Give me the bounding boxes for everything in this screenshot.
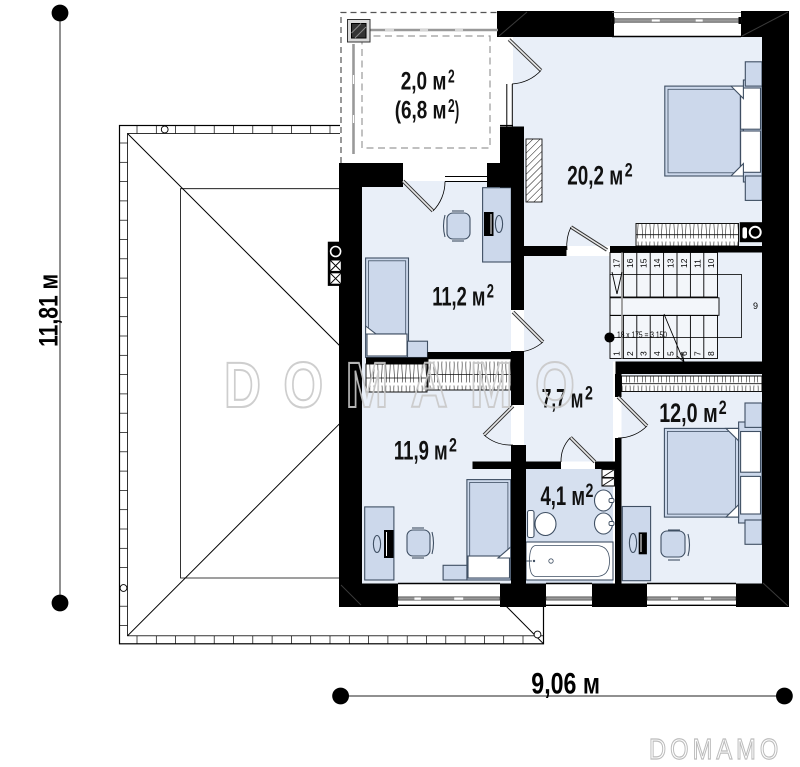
svg-text:20,2 м: 20,2 м: [567, 161, 623, 191]
svg-text:2: 2: [625, 351, 635, 356]
svg-text:17: 17: [612, 258, 622, 268]
svg-text:18 x 175 = 3 150: 18 x 175 = 3 150: [617, 330, 667, 340]
svg-text:5: 5: [666, 351, 676, 356]
svg-text:10: 10: [706, 258, 716, 268]
svg-text:11,81 м: 11,81 м: [33, 274, 63, 347]
svg-text:): ): [455, 97, 460, 125]
svg-text:7: 7: [693, 351, 703, 356]
svg-text:6: 6: [679, 351, 689, 356]
svg-text:8: 8: [706, 351, 716, 356]
svg-text:2: 2: [586, 481, 594, 502]
svg-text:2,0 м: 2,0 м: [401, 68, 447, 96]
svg-text:4,1 м: 4,1 м: [541, 481, 586, 511]
svg-text:DOMAMO: DOMAMO: [224, 351, 597, 422]
svg-text:12,0 м: 12,0 м: [659, 398, 718, 428]
svg-text:14: 14: [652, 258, 662, 268]
svg-text:(6,8 м: (6,8 м: [395, 97, 447, 125]
svg-text:1: 1: [612, 351, 622, 356]
svg-text:DOMAMO: DOMAMO: [649, 733, 782, 766]
svg-text:11: 11: [693, 259, 703, 268]
svg-text:16: 16: [625, 258, 635, 268]
svg-text:2: 2: [487, 282, 494, 303]
svg-text:15: 15: [639, 258, 649, 268]
svg-text:11,2 м: 11,2 м: [432, 282, 485, 312]
svg-text:2: 2: [625, 161, 633, 182]
svg-text:2: 2: [719, 398, 727, 419]
svg-text:9,06 м: 9,06 м: [531, 668, 600, 701]
svg-text:11,9 м: 11,9 м: [394, 435, 448, 465]
svg-text:2: 2: [448, 67, 455, 87]
svg-text:12: 12: [679, 258, 689, 268]
svg-text:2: 2: [449, 435, 457, 456]
svg-text:2: 2: [448, 96, 455, 116]
svg-text:9: 9: [753, 301, 758, 311]
svg-text:13: 13: [666, 258, 676, 268]
svg-text:3: 3: [639, 351, 649, 356]
svg-text:4: 4: [652, 351, 662, 356]
